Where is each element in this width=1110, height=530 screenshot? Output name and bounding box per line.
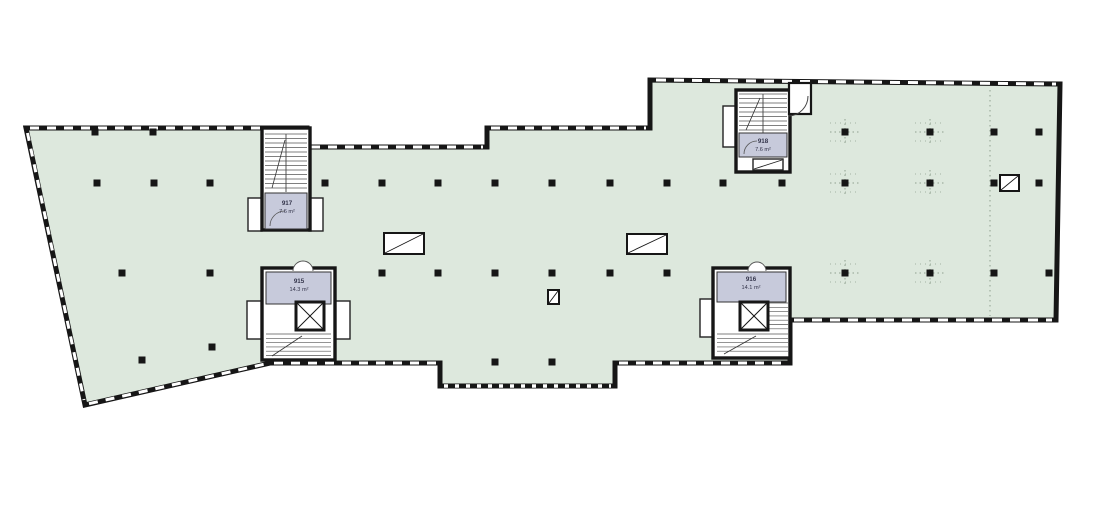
column	[991, 129, 998, 136]
roof-opening	[548, 290, 559, 304]
column	[720, 180, 727, 187]
column	[991, 270, 998, 277]
column	[1036, 129, 1043, 136]
room-916-label-id: 916	[746, 276, 757, 283]
column	[207, 270, 214, 277]
column	[607, 180, 614, 187]
column	[379, 180, 386, 187]
room-917-label-area: 7.6 m²	[279, 209, 295, 215]
stair-core-915: 915 14.3 m²	[247, 261, 350, 360]
roof-opening	[1000, 175, 1019, 191]
column	[492, 359, 499, 366]
column	[119, 270, 126, 277]
column	[607, 270, 614, 277]
column	[664, 270, 671, 277]
room-918-label-id: 918	[758, 138, 769, 145]
column	[150, 129, 157, 136]
column	[927, 129, 934, 136]
core-916-left-flange	[700, 299, 713, 337]
core-915-left-flange	[247, 301, 262, 339]
core-918-left-flange	[723, 106, 736, 147]
column	[492, 270, 499, 277]
column	[549, 359, 556, 366]
stair-core-916: 916 14.1 m²	[700, 262, 790, 358]
column	[549, 180, 556, 187]
column	[207, 180, 214, 187]
column	[379, 270, 386, 277]
column	[139, 357, 146, 364]
column	[779, 180, 786, 187]
room-918-label-area: 7.6 m²	[755, 147, 771, 153]
column	[927, 180, 934, 187]
floor-plan-svg: 917 7.6 m² 918 7.6 m² 915 14.3 m²	[0, 0, 1110, 530]
column	[492, 180, 499, 187]
roof-opening	[627, 234, 667, 254]
core-915-right-flange	[335, 301, 350, 339]
column	[991, 180, 998, 187]
column	[209, 344, 216, 351]
room-917-label-id: 917	[282, 200, 293, 207]
column	[151, 180, 158, 187]
floor-plan-page: 917 7.6 m² 918 7.6 m² 915 14.3 m²	[0, 0, 1110, 530]
column	[1036, 180, 1043, 187]
column	[842, 129, 849, 136]
room-915-label-area: 14.3 m²	[290, 287, 309, 293]
column	[664, 180, 671, 187]
column	[549, 270, 556, 277]
room-916-label-area: 14.1 m²	[742, 285, 761, 291]
column	[435, 270, 442, 277]
core-917-left-flange	[248, 198, 262, 231]
column	[322, 180, 329, 187]
room-915-label-id: 915	[294, 278, 305, 285]
column	[435, 180, 442, 187]
column	[842, 270, 849, 277]
column	[927, 270, 934, 277]
column	[94, 180, 101, 187]
column	[92, 129, 99, 136]
roof-opening	[384, 233, 424, 254]
room-918	[739, 133, 787, 157]
column	[1046, 270, 1053, 277]
column	[842, 180, 849, 187]
